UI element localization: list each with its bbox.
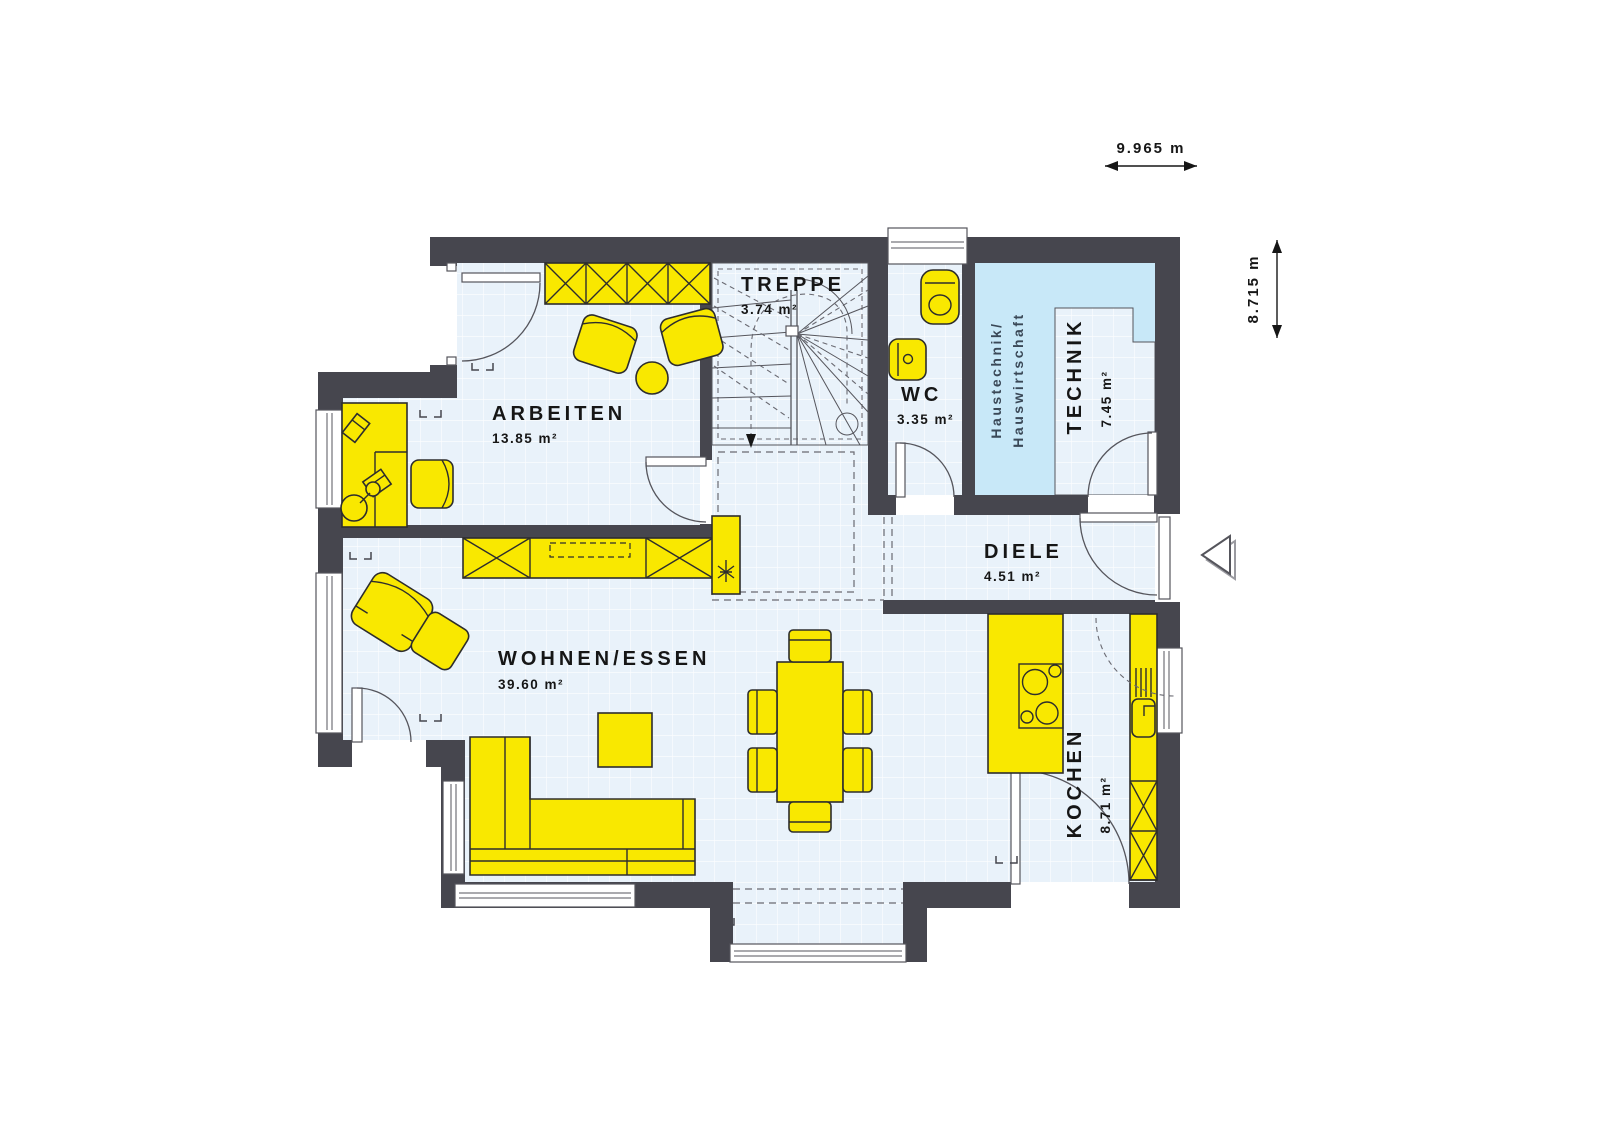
dimension-height: 8.715 m [1245, 240, 1282, 338]
technik-area: 7.45 m² [1099, 370, 1114, 427]
dimension-width: 9.965 m [1105, 140, 1197, 171]
sink-icon [889, 339, 926, 380]
desk-chair-icon [411, 460, 453, 508]
toilet-icon [921, 270, 959, 324]
wc-area: 3.35 m² [897, 412, 954, 427]
treppe-area: 3.74 m² [741, 302, 798, 317]
window-wc-top [888, 228, 967, 264]
window-wohnen-sw [443, 781, 464, 874]
arbeiten-area: 13.85 m² [492, 431, 558, 446]
side-table-icon [636, 362, 668, 394]
utility-label-line1: Haustechnik/ [988, 321, 1004, 438]
treppe-label: TREPPE [741, 274, 845, 296]
kitchen-counter-icon [1130, 614, 1157, 880]
diele-label: DIELE [984, 541, 1063, 563]
utility-label-line2: Hauswirtschaft [1010, 312, 1026, 447]
wohnen-label: WOHNEN/ESSEN [498, 648, 710, 670]
arbeiten-label: ARBEITEN [492, 403, 626, 425]
floor-plan-page: ARBEITEN 13.85 m² TREPPE 3.74 m² WC 3.35… [0, 0, 1600, 1132]
floor-plan-drawing: ARBEITEN 13.85 m² TREPPE 3.74 m² WC 3.35… [0, 0, 1600, 1132]
window-wohnen-left [316, 573, 342, 733]
width-dimension-label: 9.965 m [1116, 140, 1185, 157]
wohnen-area: 39.60 m² [498, 677, 564, 692]
window-bay-bottom [730, 944, 906, 962]
height-dimension-label: 8.715 m [1245, 254, 1262, 323]
kochen-label: KOCHEN [1064, 728, 1086, 839]
technik-label: TECHNIK [1064, 318, 1086, 435]
kitchen-island-icon [988, 614, 1063, 773]
wardrobe-icon [545, 263, 710, 304]
coffee-table-icon [598, 713, 652, 767]
desk-icon [341, 403, 407, 527]
kochen-area: 8.71 m² [1098, 776, 1113, 833]
plant-shelf-icon [712, 516, 740, 594]
entrance-arrow-icon [1202, 536, 1235, 579]
window-arbeiten-left [316, 410, 342, 508]
diele-area: 4.51 m² [984, 569, 1041, 584]
wc-label: WC [901, 384, 942, 406]
window-wohnen-bottom [455, 884, 635, 907]
sideboard-icon [463, 538, 713, 578]
